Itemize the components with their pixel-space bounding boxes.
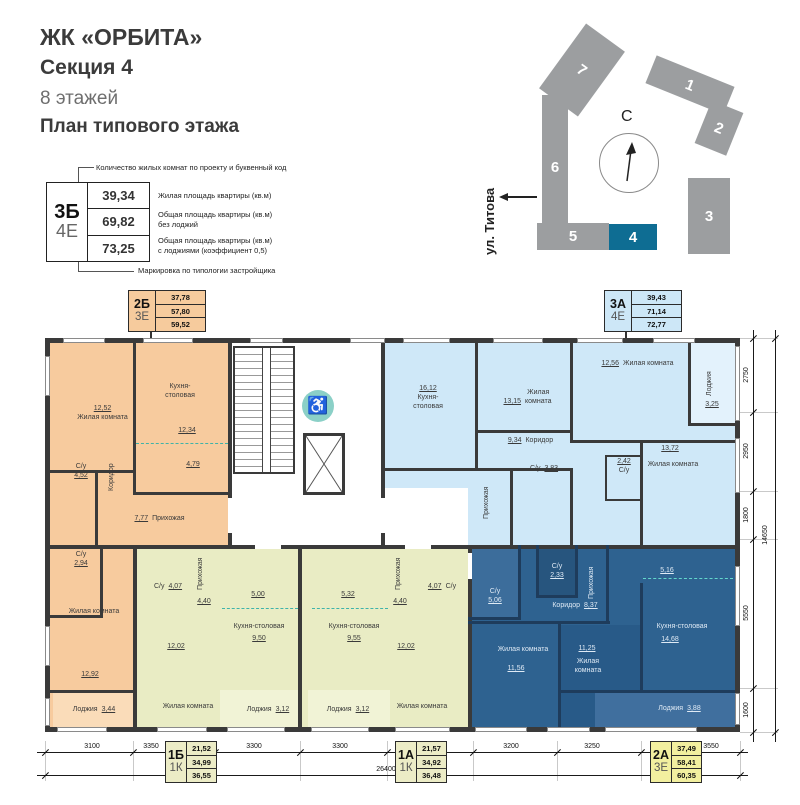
extension-line — [740, 732, 778, 733]
window — [227, 727, 285, 732]
room-area: 11,56 — [496, 665, 536, 674]
wall — [468, 621, 610, 624]
window — [250, 338, 283, 343]
window — [735, 438, 740, 493]
room-label: С/у3,83 — [516, 465, 572, 474]
room-label: 12,52Жилая комната — [65, 405, 140, 423]
room-label: 11,56 — [496, 665, 536, 674]
dimension-total-line — [775, 330, 776, 742]
window — [157, 727, 207, 732]
total-area: 34,92 — [417, 756, 446, 770]
room-label: Жилая комната — [382, 703, 462, 712]
room-label: 14,68 — [650, 636, 690, 645]
total-area-with-loggia: 72,77 — [632, 318, 681, 331]
site-plan: 7 6 1 2 3 5 4 С ул. Титова — [480, 12, 795, 267]
wall — [575, 545, 578, 598]
room-label: Жилая комната — [148, 703, 228, 712]
street-arrow-line — [507, 196, 537, 198]
door-opening — [405, 545, 431, 549]
dimension-total-value: 14650 — [762, 525, 769, 544]
room-name: Кухня- столовая — [150, 383, 210, 401]
building-4-highlighted: 4 — [609, 224, 657, 250]
room-label: 3,25 — [698, 401, 726, 410]
room-area: 3,25 — [698, 401, 726, 410]
room-area: 3,12 — [356, 706, 370, 715]
wall — [570, 343, 573, 440]
kitchen-zone-line — [136, 443, 228, 444]
total-area: 34,99 — [187, 756, 216, 770]
kitchen-zone-line — [222, 608, 298, 609]
common-corridor — [228, 488, 468, 545]
window — [735, 566, 740, 626]
tag-areas: 39,4371,1472,77 — [632, 291, 681, 331]
apartment-2a-bath — [468, 545, 520, 619]
wall — [468, 617, 521, 620]
room-name: Коридор — [525, 437, 553, 446]
wall — [570, 468, 573, 545]
legend-top-note: Количество жилых комнат по проекту и бук… — [96, 163, 346, 173]
total-area: 71,14 — [632, 305, 681, 319]
legend-total-area-loggia: 73,25 — [88, 236, 149, 261]
total-area-with-loggia: 60,35 — [672, 769, 701, 782]
room-label: Коридор — [108, 453, 117, 501]
dimension-value: 1800 — [743, 507, 750, 523]
room-area: 3,44 — [102, 706, 116, 715]
room-name: Лоджия — [327, 706, 352, 715]
elevator — [303, 433, 345, 495]
living-area: 21,57 — [417, 742, 446, 756]
room-label: 5,00 — [243, 591, 273, 600]
room-label: С/у2,33 — [541, 563, 573, 581]
room-area: 12,56 — [601, 360, 619, 369]
dimension-value: 3100 — [84, 743, 100, 750]
room-label: Кухня-столовая — [632, 623, 732, 632]
room-area: 9,50 — [244, 635, 274, 644]
legend-room-code: 3Б — [54, 202, 80, 222]
window — [395, 727, 450, 732]
legend-values: 39,34 69,82 73,25 — [88, 183, 149, 261]
window — [605, 727, 697, 732]
wheelchair-accessible-icon: ♿ — [302, 390, 334, 422]
wall — [133, 545, 137, 727]
kitchen-zone-line — [643, 578, 733, 579]
building-5: 5 — [537, 223, 609, 250]
room-label: Лоджия3,12 — [308, 706, 388, 715]
total-area-with-loggia: 36,48 — [417, 769, 446, 782]
dimension-value: 5550 — [743, 605, 750, 621]
living-area: 39,43 — [632, 291, 681, 305]
elevator-x-icon — [306, 436, 342, 492]
room-area: 4,40 — [386, 598, 414, 607]
room-label: 9,34Коридор — [478, 437, 583, 446]
room-name: С/у — [541, 563, 573, 572]
window — [143, 338, 193, 343]
room-name: Кухня- столовая — [398, 394, 458, 412]
total-area: 58,41 — [672, 756, 701, 770]
room-name: Прихожая — [152, 515, 184, 524]
room-area: 12,92 — [70, 671, 110, 680]
room-count-code: 1А — [398, 749, 414, 762]
window — [45, 698, 50, 726]
window — [45, 626, 50, 666]
room-area: 11,25 — [570, 645, 604, 654]
legend-row2-label: Общая площадь квартиры (кв.м) без лоджий — [158, 210, 272, 230]
legend-bottom-note: Маркировка по типологии застройщика — [138, 266, 275, 276]
room-area: 7,77 — [134, 515, 148, 524]
room-area: 4,52 — [62, 472, 100, 481]
room-name: С/у — [530, 465, 541, 474]
dimension-value: 2950 — [743, 443, 750, 459]
extension-line — [740, 412, 778, 413]
room-area: 12,52 — [65, 405, 140, 414]
room-area: 16,12 — [398, 385, 458, 394]
room-label: С/у2,94 — [62, 551, 100, 569]
tag-areas: 21,5734,9236,48 — [417, 742, 446, 782]
dimension-value: 2750 — [743, 367, 750, 383]
room-area: 5,16 — [650, 567, 684, 576]
tag-codes: 1А1К — [396, 742, 417, 782]
window — [311, 727, 369, 732]
apartment-tag-1a: 1А1К 21,5734,9236,48 — [395, 741, 447, 783]
dimension-value: 3250 — [584, 743, 600, 750]
room-area: 2,94 — [62, 560, 100, 569]
tag-codes: 2Б3Е — [129, 291, 156, 331]
compass-circle — [599, 133, 659, 193]
right-dimension-chain: 2750 2950 1800 5550 1600 14650 — [745, 330, 800, 742]
street-label: ул. Титова — [482, 140, 497, 255]
door-opening — [468, 553, 472, 579]
room-area: 4,07 — [428, 583, 442, 592]
section-title: Секция 4 — [40, 56, 133, 80]
wall — [688, 423, 735, 426]
bottom-dimension-chain: 3100 3350 3300 3300 3200 3250 3550 26400… — [37, 741, 748, 791]
legend-total-area: 69,82 — [88, 209, 149, 235]
tag-areas: 21,5234,9936,55 — [187, 742, 216, 782]
room-label: 13,15Жилая комната — [490, 389, 565, 407]
kitchen-zone-line — [312, 608, 388, 609]
building-6: 6 — [542, 95, 568, 240]
room-label: 12,34 — [172, 427, 202, 436]
wall — [536, 545, 539, 598]
wall — [536, 595, 578, 598]
building-3: 3 — [688, 178, 730, 254]
wall — [558, 690, 735, 693]
dimension-line — [753, 330, 754, 742]
wall — [510, 468, 513, 545]
room-name: С/у — [446, 583, 457, 592]
door-opening — [228, 498, 232, 533]
plan-title: План типового этажа — [40, 116, 239, 138]
room-name: Лоджия — [658, 705, 683, 714]
wall — [475, 343, 478, 468]
room-label: 12,02 — [390, 643, 422, 652]
room-label: 4,79 — [178, 461, 208, 470]
living-area: 21,52 — [187, 742, 216, 756]
wall — [50, 545, 735, 549]
room-name: Жилая комната — [525, 389, 551, 407]
apartment-tag-2a: 2А3Е 37,4958,4160,35 — [650, 741, 702, 783]
window — [653, 338, 695, 343]
type-code: 3Е — [135, 311, 149, 324]
room-area: 5,00 — [243, 591, 273, 600]
stair-landing — [262, 348, 271, 472]
room-area: 12,02 — [160, 643, 192, 652]
dimension-total-value: 26400 — [376, 766, 395, 773]
room-label: 12,92 — [70, 671, 110, 680]
wall — [640, 583, 643, 693]
room-area: 2,33 — [541, 572, 573, 581]
room-area: 12,02 — [390, 643, 422, 652]
room-label: 7,77Прихожая — [102, 515, 217, 524]
total-area-with-loggia: 59,52 — [156, 318, 205, 331]
legend-type-code: 4Е — [56, 222, 78, 242]
room-count-code: 3А — [610, 298, 626, 311]
room-area: 9,34 — [508, 437, 522, 446]
dimension-value: 3300 — [332, 743, 348, 750]
extension-line — [740, 338, 778, 339]
dimension-value: 1600 — [743, 702, 750, 718]
room-area: 5,06 — [478, 597, 512, 606]
legend-leader-line — [78, 167, 79, 182]
room-area: 3,12 — [276, 706, 290, 715]
room-label: Лоджия3,88 — [632, 705, 727, 714]
room-area: 4,79 — [178, 461, 208, 470]
room-name: Жилая комната — [623, 360, 674, 369]
room-area: 4,40 — [190, 598, 218, 607]
wall — [688, 343, 691, 423]
room-label: 9,50 — [244, 635, 274, 644]
room-area: 5,32 — [333, 591, 363, 600]
room-label: Жилая комната — [562, 658, 614, 676]
legend-living-area: 39,34 — [88, 183, 149, 209]
room-count-code: 1Б — [168, 749, 184, 762]
room-label: Жилая комната — [638, 461, 708, 470]
type-code: 4Е — [611, 311, 625, 324]
room-label: 4,07С/у — [412, 583, 472, 592]
staircase — [233, 346, 295, 474]
legend-codes: 3Б 4Е — [47, 183, 88, 261]
apartment-tag-3a: 3А4Е 39,4371,1472,77 — [604, 290, 682, 332]
door-opening — [255, 545, 281, 549]
legend-row3-label: Общая площадь квартиры (кв.м) с лоджиями… — [158, 236, 272, 256]
apartment-tag-2b: 2Б3Е 37,7857,8059,52 — [128, 290, 206, 332]
room-area: 13,15 — [503, 398, 521, 407]
room-label: С/у4,07 — [138, 583, 198, 592]
living-area: 37,49 — [672, 742, 701, 756]
legend-leader-line — [78, 167, 94, 168]
room-label: Лоджия3,12 — [228, 706, 308, 715]
type-code: 1К — [399, 762, 412, 775]
room-area: 9,55 — [339, 635, 369, 644]
tag-codes: 1Б1К — [166, 742, 187, 782]
room-label: Прихожая — [395, 551, 404, 596]
living-area: 37,78 — [156, 291, 205, 305]
room-label: Прихожая — [197, 551, 206, 596]
room-label: 13,72 — [650, 445, 690, 454]
wall — [570, 440, 735, 443]
room-area: 13,72 — [650, 445, 690, 454]
room-name: Лоджия — [73, 706, 98, 715]
wall — [133, 492, 231, 495]
window — [577, 338, 623, 343]
wall — [558, 624, 561, 727]
room-name: С/у — [478, 588, 512, 597]
room-label: Жилая комната — [55, 608, 133, 617]
legend-row1-label: Жилая площадь квартиры (кв.м) — [158, 191, 271, 201]
window — [63, 338, 105, 343]
room-label: Лоджия3,44 — [55, 706, 133, 715]
room-area: 3,88 — [687, 705, 701, 714]
tag-codes: 3А4Е — [605, 291, 632, 331]
floor-plan-page: ЖК «ОРБИТА» Секция 4 8 этажей План типов… — [0, 0, 800, 805]
tag-codes: 2А3Е — [651, 742, 672, 782]
extension-line — [740, 491, 778, 492]
street-arrow-icon — [499, 193, 508, 201]
room-label: Кухня- столовая — [150, 383, 210, 401]
room-label: 5,32 — [333, 591, 363, 600]
window — [350, 338, 385, 343]
room-label: 11,25 — [570, 645, 604, 654]
tag-areas: 37,4958,4160,35 — [672, 742, 701, 782]
window — [45, 356, 50, 396]
type-code: 3Е — [654, 762, 668, 775]
room-label: 4,40 — [386, 598, 414, 607]
wall — [50, 690, 133, 693]
north-arrow-icon — [600, 134, 658, 192]
room-label: 12,56Жилая комната — [590, 360, 685, 369]
window — [493, 338, 543, 343]
total-area-with-loggia: 36,55 — [187, 769, 216, 782]
dimension-value: 3300 — [246, 743, 262, 750]
room-label: С/у5,06 — [478, 588, 512, 606]
room-label: Кухня-столовая — [313, 623, 395, 632]
building-2: 2 — [695, 100, 744, 155]
total-area: 57,80 — [156, 305, 205, 319]
room-area: 2,42 — [608, 458, 640, 467]
room-name: Коридор — [552, 602, 580, 611]
room-area: 4,07 — [168, 583, 182, 592]
window — [735, 346, 740, 421]
room-label: 4,40 — [190, 598, 218, 607]
room-count-code: 2Б — [134, 298, 150, 311]
room-label: 2,42С/у — [608, 458, 640, 476]
window — [735, 693, 740, 725]
room-label: Прихожая — [483, 475, 492, 530]
room-area: 14,68 — [650, 636, 690, 645]
extension-line — [740, 539, 778, 540]
wall — [298, 545, 302, 727]
wall — [95, 470, 98, 545]
room-label: 5,16 — [650, 567, 684, 576]
room-count-code: 2А — [653, 749, 669, 762]
room-label: 9,55 — [339, 635, 369, 644]
room-label: 12,02 — [160, 643, 192, 652]
room-area: 3,83 — [544, 465, 558, 474]
room-label: Кухня-столовая — [218, 623, 300, 632]
dimension-value: 3200 — [503, 743, 519, 750]
room-name: Жилая комната — [65, 414, 140, 423]
wall — [100, 545, 103, 615]
room-name: С/у — [62, 551, 100, 560]
room-label: Лоджия — [706, 361, 715, 406]
dimension-total-line — [37, 775, 748, 776]
room-name: С/у — [154, 583, 165, 592]
room-label: Жилая комната — [483, 646, 563, 655]
room-area: 12,34 — [172, 427, 202, 436]
window — [547, 727, 590, 732]
legend-leader-line — [78, 271, 134, 272]
room-name: С/у — [608, 467, 640, 476]
window — [475, 727, 527, 732]
room-name: С/у — [62, 463, 100, 472]
extension-line — [740, 688, 778, 689]
north-label: С — [621, 108, 633, 126]
tag-areas: 37,7857,8059,52 — [156, 291, 205, 331]
window — [57, 727, 107, 732]
dimension-value: 3350 — [143, 743, 159, 750]
apartment-tag-1b: 1Б1К 21,5234,9936,55 — [165, 741, 217, 783]
legend-sample-tag: 3Б 4Е 39,34 69,82 73,25 — [46, 182, 150, 262]
project-title: ЖК «ОРБИТА» — [40, 24, 202, 51]
dimension-value: 3550 — [703, 743, 719, 750]
wall — [475, 430, 573, 433]
window — [403, 338, 450, 343]
typical-floor-plan: ♿ 12,52Жилая комната Кухня- столовая 12,… — [45, 338, 740, 732]
room-label: Коридор8,37 — [520, 602, 630, 611]
room-name: Лоджия — [247, 706, 272, 715]
floors-count: 8 этажей — [40, 88, 118, 110]
type-code: 1К — [169, 762, 182, 775]
room-area: 8,37 — [584, 602, 598, 611]
door-opening — [381, 498, 385, 533]
room-label: С/у4,52 — [62, 463, 100, 481]
room-label: 16,12Кухня- столовая — [398, 385, 458, 411]
